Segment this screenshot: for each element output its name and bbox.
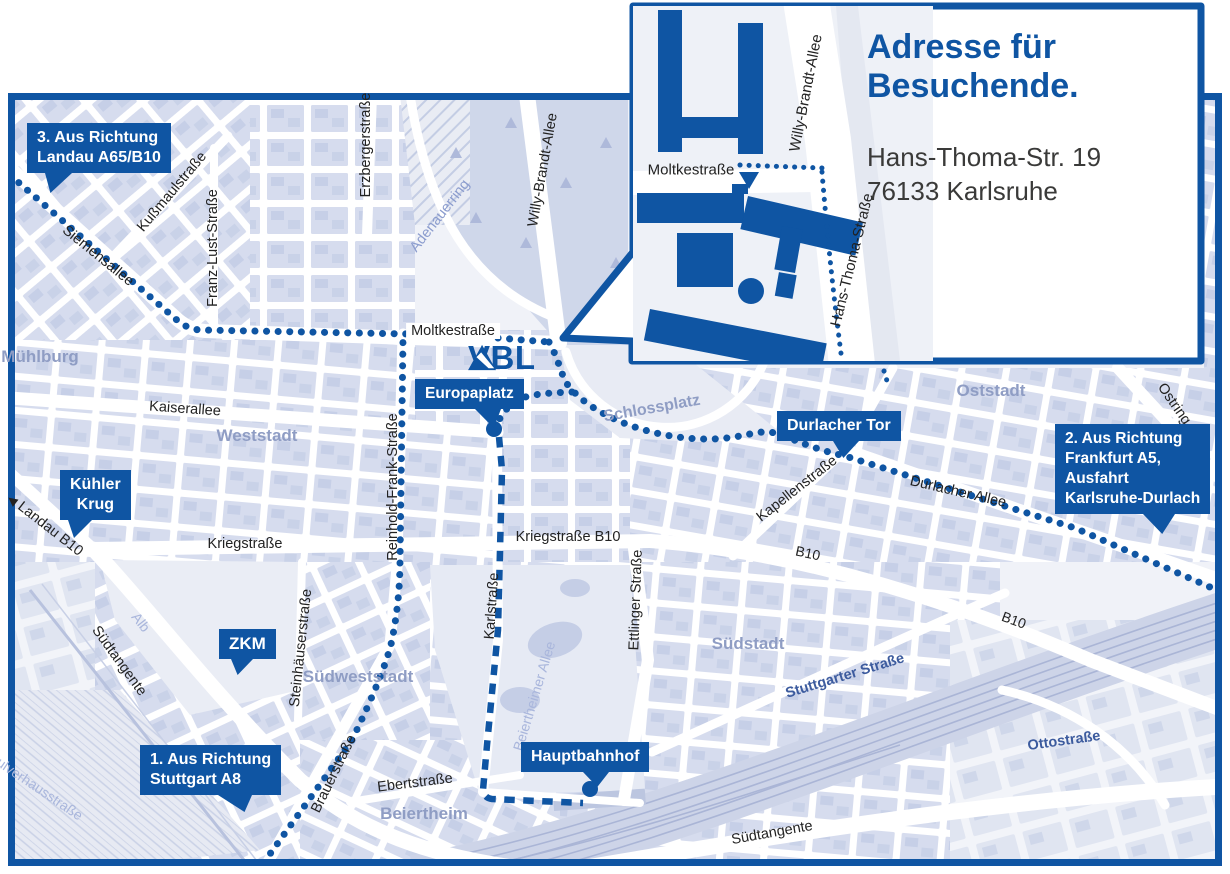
street-erzbergerstrasse: Erzbergerstraße <box>358 93 374 198</box>
street-reinhold-frank-strasse: Reinhold-Frank-Straße <box>385 413 401 560</box>
district-weststadt: Weststadt <box>217 426 298 446</box>
callout-landau: 3. Aus Richtung Landau A65/B10 <box>27 123 171 173</box>
street-franz-lust-strasse: Franz-Lust-Straße <box>205 189 221 307</box>
street-kriegstrasse: Kriegstraße <box>208 536 283 552</box>
district-beiertheim: Beiertheim <box>380 804 468 824</box>
district-suedweststadt: Südweststadt <box>303 667 414 687</box>
district-muehlburg: Mühlburg <box>1 347 78 367</box>
district-oststadt: Oststadt <box>957 381 1026 401</box>
vbl-directions-map: Mühlburg Weststadt Oststadt Südstadt Süd… <box>0 0 1230 874</box>
vbl-triangle-icon <box>468 344 498 372</box>
inset-address: Hans-Thoma-Str. 19 76133 Karlsruhe <box>867 140 1101 208</box>
callout-stuttgart: 1. Aus Richtung Stuttgart A8 <box>140 745 281 795</box>
inset-street-moltkestrasse: Moltkestraße <box>648 162 735 179</box>
callout-europaplatz: Europaplatz <box>415 379 524 409</box>
vbl-logo: VBL <box>468 344 536 372</box>
callout-hauptbahnhof: Hauptbahnhof <box>521 742 649 772</box>
inset-title: Adresse für Besuchende. <box>867 28 1079 106</box>
callout-kuehler-krug: Kühler Krug <box>60 470 131 520</box>
district-suedstadt: Südstadt <box>712 634 785 654</box>
callout-zkm: ZKM <box>219 629 276 659</box>
street-moltkestrasse: Moltkestraße <box>406 323 500 339</box>
callout-durlacher-tor: Durlacher Tor <box>777 411 901 441</box>
callout-frankfurt: 2. Aus Richtung Frankfurt A5, Ausfahrt K… <box>1055 424 1210 514</box>
street-kriegstrasse-b10: Kriegstraße B10 <box>516 529 621 545</box>
